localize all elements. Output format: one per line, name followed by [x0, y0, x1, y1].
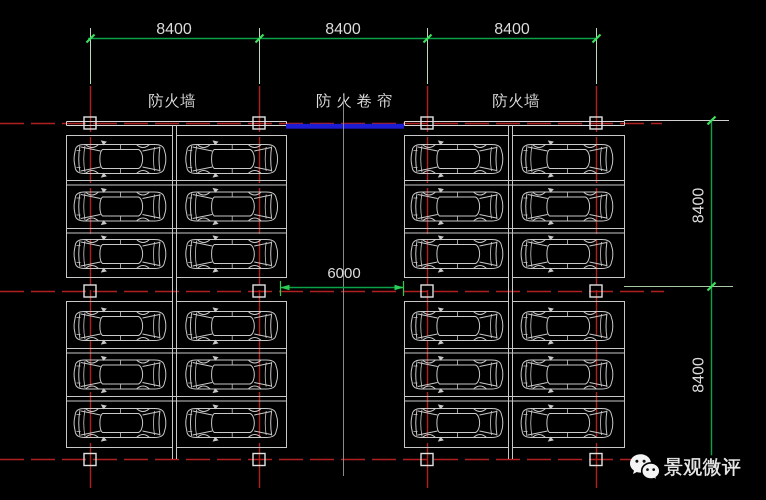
svg-text:8400: 8400: [156, 21, 192, 38]
svg-text:6000: 6000: [327, 265, 360, 282]
svg-text:8400: 8400: [691, 188, 708, 224]
svg-text:8400: 8400: [691, 357, 708, 393]
svg-text:8400: 8400: [494, 21, 530, 38]
svg-text:8400: 8400: [325, 21, 361, 38]
